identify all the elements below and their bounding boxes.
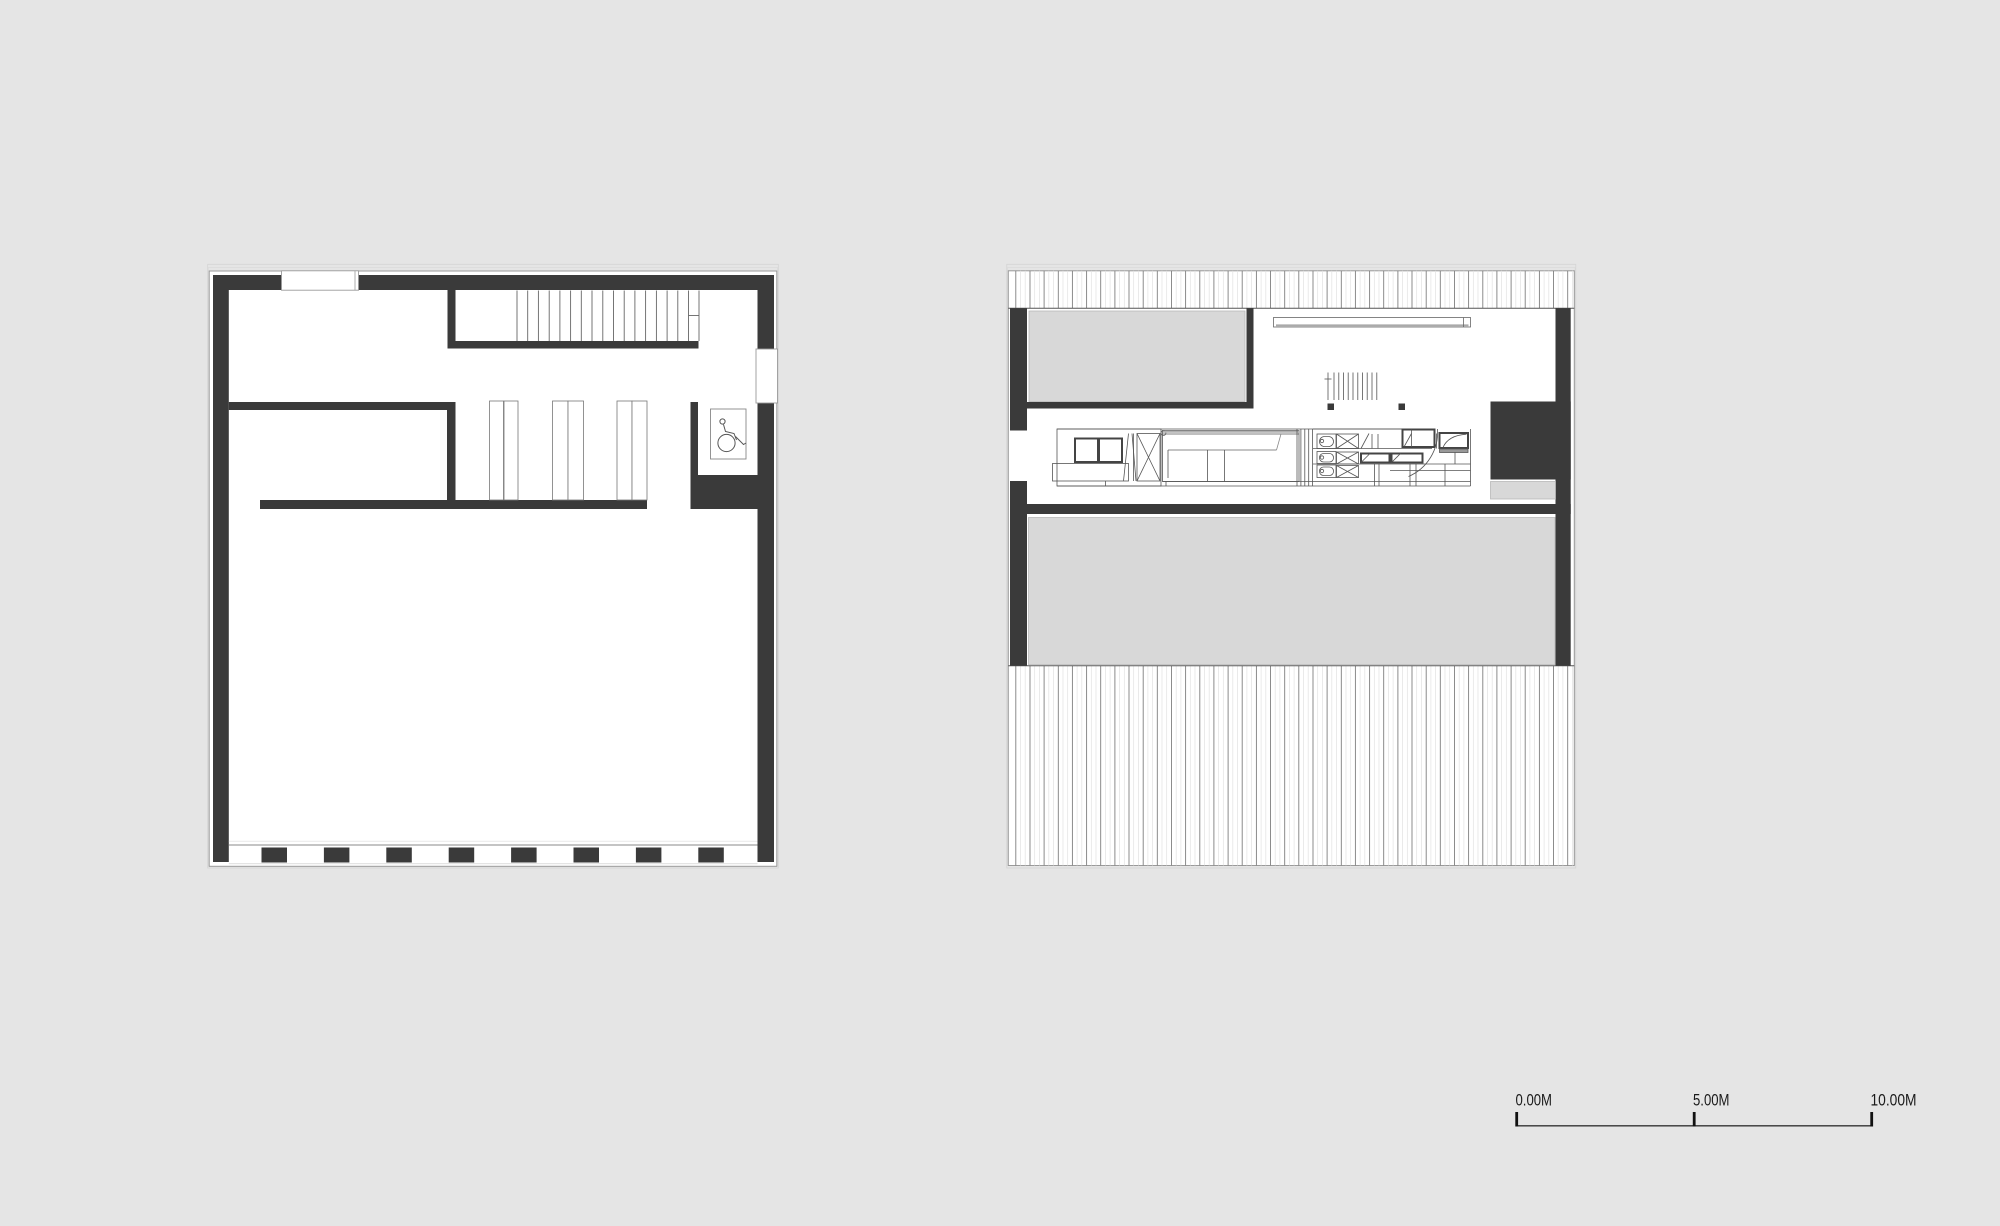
svg-text:5.00M: 5.00M — [1693, 1091, 1730, 1109]
svg-text:10.00M: 10.00M — [1871, 1091, 1917, 1109]
svg-text:0.00M: 0.00M — [1516, 1091, 1553, 1109]
